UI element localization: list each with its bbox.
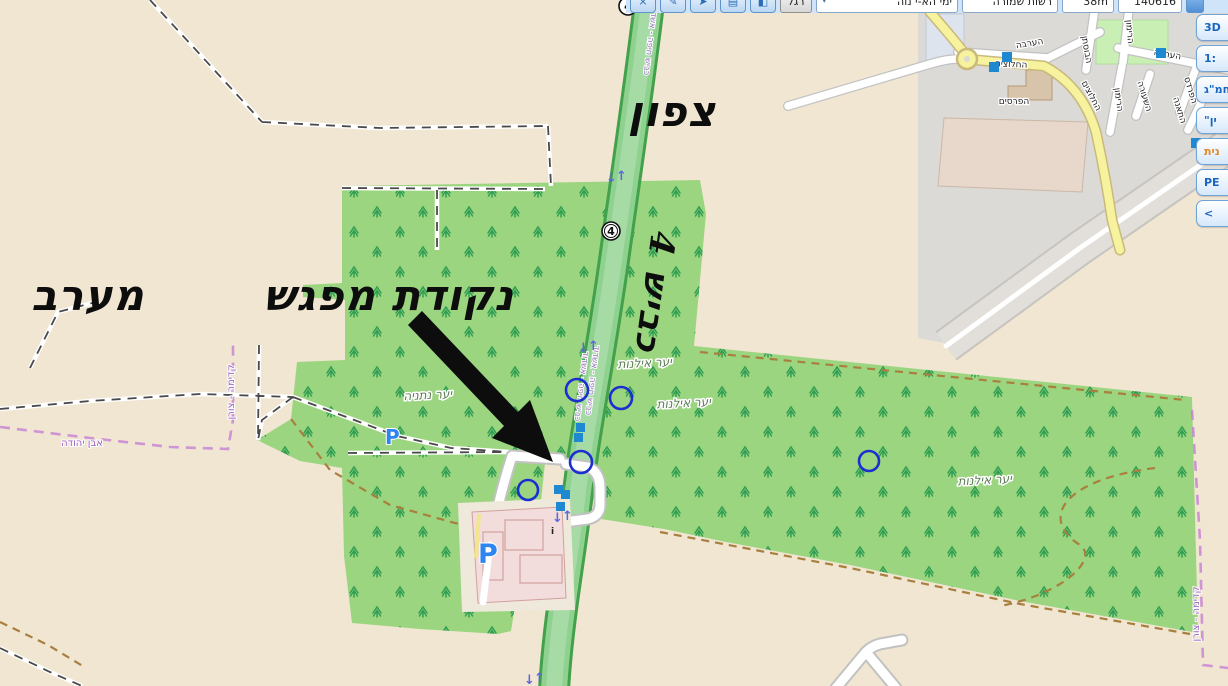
svg-text:↑: ↑ (616, 169, 627, 184)
foot-mode-label: רגל (788, 0, 805, 8)
forest-label: יער אילנות (656, 395, 712, 412)
panel-button-highlighted[interactable]: נית (1196, 138, 1228, 165)
erase-icon: ◧ (758, 0, 768, 8)
status-value: רשות שמורה (993, 0, 1052, 8)
layer-dropdown[interactable]: ▾ ימי הא-י נוה (816, 0, 958, 13)
building (938, 118, 1088, 192)
annotation-north: צפון (628, 87, 716, 136)
coordinate-value: 140616 (1134, 0, 1176, 8)
forest-label: יער אילנות (617, 355, 673, 372)
pin-button[interactable]: ➤ (690, 0, 716, 13)
erase-button[interactable]: ◧ (750, 0, 776, 13)
forest-label: יער אילנות (957, 472, 1013, 489)
panel-button-pe[interactable]: PE (1196, 169, 1228, 196)
panel-button-label: "ין (1204, 114, 1217, 127)
elevation-value: 38m (1083, 0, 1108, 8)
pencil-icon: ✎ (668, 0, 677, 8)
coordinate-field[interactable]: 140616 (1118, 0, 1182, 13)
panel-button-label: חמ"ג (1204, 83, 1228, 96)
annotation-meeting-point: נקודת מפגש (264, 271, 515, 320)
panel-collapse-button[interactable]: < (1196, 200, 1228, 227)
top-toolbar: × ✎ ➤ ▤ ◧ רגל ▾ ימי הא-י נוה רשות שמורה … (626, 0, 1228, 13)
save-button[interactable]: ▤ (720, 0, 746, 13)
panel-button-label: PE (1204, 176, 1220, 189)
layer-dropdown-value: ימי הא-י נוה (897, 0, 952, 8)
map-canvas[interactable]: הערבה החלוצים הבוסתן הרימון הרימון הערבה… (0, 0, 1228, 686)
panel-button-label: < (1204, 207, 1213, 220)
gis-app-window: הערבה החלוצים הבוסתן הרימון הרימון הערבה… (0, 0, 1228, 686)
annotation-west: מערב (31, 271, 145, 320)
side-panel: 3D 1: חמ"ג "ין נית PE < (1196, 14, 1228, 227)
svg-text:↑: ↑ (588, 339, 599, 354)
close-icon: × (638, 0, 647, 8)
boundary-label: קדימה - צורן (226, 364, 237, 419)
street-label: הרימון (1123, 19, 1135, 44)
elevation-field[interactable]: 38m (1062, 0, 1114, 13)
save-icon: ▤ (728, 0, 738, 8)
panel-button-3d[interactable]: 3D (1196, 14, 1228, 41)
chevron-down-icon: ▾ (822, 0, 827, 6)
route-shield: 4 (607, 225, 615, 238)
info-icon: i (551, 527, 554, 537)
svg-text:↑: ↑ (562, 509, 573, 524)
svg-text:↑: ↑ (534, 671, 545, 686)
forest-label: יער נתניה (403, 387, 454, 404)
parking-icon: P (385, 425, 400, 449)
panel-button-label: נית (1204, 145, 1220, 158)
panel-button-scale[interactable]: 1: (1196, 45, 1228, 72)
panel-button-hamag[interactable]: חמ"ג (1196, 76, 1228, 103)
boundary-label: אבן יהודה (61, 438, 103, 449)
draw-button[interactable]: ✎ (660, 0, 686, 13)
panel-button-label: 3D (1204, 21, 1221, 34)
panel-button-4[interactable]: "ין (1196, 107, 1228, 134)
panel-button-label: 1: (1204, 52, 1216, 65)
status-field[interactable]: רשות שמורה (962, 0, 1058, 13)
pin-icon: ➤ (698, 0, 707, 8)
foot-mode-button[interactable]: רגל (780, 0, 812, 13)
street-label: הפרסים (999, 97, 1030, 107)
toolbar-end-button[interactable] (1186, 0, 1204, 13)
boundary-label: קדימה - צורן (1191, 586, 1202, 641)
parking-icon: P (478, 539, 498, 570)
close-button[interactable]: × (630, 0, 656, 13)
